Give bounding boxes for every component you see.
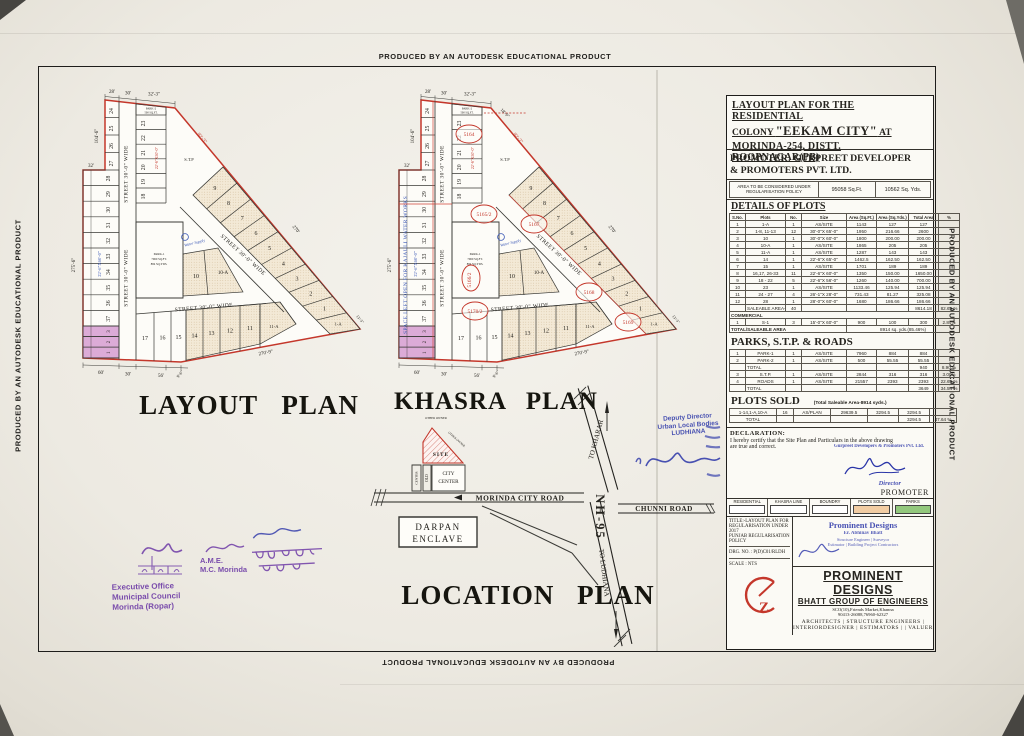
table-cell: 22'-6"X 56'-0" — [802, 277, 847, 284]
table-cell: 8614.18 — [909, 305, 939, 312]
dimension: 32' — [404, 164, 410, 169]
drg-no: DRG. NO. : P(D)C01/RLDH — [729, 547, 790, 559]
details-row: 11-A1AS/SITE1143127127 — [730, 221, 960, 228]
autodesk-banner-top: PRODUCED BY AN AUTODESK EDUCATIONAL PROD… — [365, 52, 625, 61]
table-cell: AS/SITE — [802, 221, 847, 228]
details-of-plots-table: S.No.PlotsNo.SizeArea (Sq.Ft.)Area (Sq.Y… — [729, 213, 960, 333]
to-kharar-label: TO KHARAR — [587, 419, 605, 461]
sold-plot-fill — [399, 347, 435, 358]
table-cell: 1 — [786, 249, 802, 256]
pd-stamp-line1: Prominent Designs — [793, 521, 933, 531]
road-end-tick — [371, 489, 376, 506]
table-cell: SALEABLE AREA-Residential — [746, 305, 786, 312]
plot-number: 8 — [227, 201, 230, 207]
dimension: 270'-9" — [574, 350, 589, 358]
table-cell: 12 — [786, 228, 802, 235]
khasra-plan-title: KHASRA PLAN — [366, 388, 626, 416]
firm-cell: Prominent Designs Er. Abhinav Bhatt Stru… — [793, 517, 933, 635]
table-cell — [730, 305, 746, 312]
table-cell: 1 — [786, 350, 802, 357]
plot-number: 36 — [422, 300, 428, 306]
details-header-row: S.No.PlotsNo.SizeArea (Sq.Ft.)Area (Sq.Y… — [730, 214, 960, 221]
sold-plot-fill — [83, 337, 119, 348]
table-cell: 28 — [746, 298, 786, 305]
table-cell: 143 — [877, 249, 909, 256]
plot-number: 7 — [241, 216, 244, 222]
dimension: 32'-3" — [464, 93, 476, 98]
layout-plan-drawing: 28293031323334353637321STREET 30'-0" WID… — [58, 82, 370, 386]
plot-number: 21 — [457, 150, 463, 156]
plot-number: 10 — [509, 274, 515, 280]
plot-number: 6 — [570, 231, 573, 237]
parks-row: 4ROADS1AS/SITE215572393239322.63 % — [730, 378, 960, 385]
table-cell: AS/SITE — [802, 350, 847, 357]
table-cell — [877, 305, 909, 312]
table-cell: 216.66 — [877, 228, 909, 235]
table-cell: 1701 — [847, 263, 877, 270]
table-cell: 143 — [909, 249, 939, 256]
plan-line — [490, 513, 572, 553]
plot-number: 14 — [192, 333, 198, 339]
table-cell: 2 — [730, 357, 746, 364]
column-header: No. — [786, 214, 802, 221]
legend-row: RESIDENTIAL KHASRA LINE BOUNDRY PLOTS SO… — [727, 499, 933, 517]
parks-row: TOTAL364934.54 % — [730, 385, 960, 392]
plot-number: 8 — [543, 201, 546, 207]
table-cell: 1 — [786, 263, 802, 270]
promoter-line2: & PROMOTERS PVT. LTD. — [730, 165, 930, 177]
table-cell: 125.94 — [877, 284, 909, 291]
plot-number: 4 — [598, 261, 601, 267]
ame-stamp-line1: A.M.E. — [200, 556, 247, 565]
table-cell: 7 — [730, 263, 746, 270]
hindi-stamp — [247, 522, 346, 579]
table-cell: 900 — [847, 319, 877, 326]
park2-label: 500 SQ.FT. — [145, 111, 158, 114]
table-cell — [877, 364, 909, 371]
table-cell: 3649 — [909, 385, 939, 392]
table-cell: TOTAL — [746, 364, 786, 371]
legend-swatch — [853, 505, 889, 514]
plot-number: 34 — [422, 269, 428, 275]
table-cell — [730, 385, 746, 392]
plot-number: 37 — [422, 316, 428, 322]
table-cell: COMMERCIAL — [730, 312, 960, 319]
plot-number: 30 — [106, 207, 112, 213]
plot-number: 18 — [141, 194, 147, 200]
table-cell: AS/SITE — [802, 284, 847, 291]
details-of-plots-heading: DETAILS OF PLOTS — [727, 200, 933, 212]
plot-number: 28 — [106, 176, 112, 182]
table-cell: 16,17, 26-33 — [746, 270, 786, 277]
plot-number: 1-A — [335, 321, 343, 326]
plot-number: 10-A — [218, 271, 229, 276]
plot-number: 3 — [296, 276, 299, 282]
plot-number: 23 — [141, 121, 147, 127]
plot-number: 14 — [508, 333, 514, 339]
dimension: 13'-3" — [355, 314, 365, 325]
table-cell — [786, 364, 802, 371]
scan-corner-tl — [0, 0, 26, 20]
table-cell: 26'-1"X 28'-0" — [802, 291, 847, 298]
table-cell — [786, 385, 802, 392]
table-cell — [730, 364, 746, 371]
details-row: 614122'-6"X 65'-0"1462.5162.50162.50 — [730, 256, 960, 263]
plot-number: 3 — [612, 276, 615, 282]
table-cell: 205 — [877, 242, 909, 249]
sold-plot-fill — [83, 347, 119, 358]
park2-label: 500 SQ.FT. — [461, 111, 474, 114]
plot-number: 16 — [476, 336, 482, 342]
table-cell: 1650.00 — [909, 270, 939, 277]
table-cell: 2600 — [909, 228, 939, 235]
stp-label: S.T.P — [184, 157, 194, 162]
table-cell: 30'-0"X 65'-0" — [802, 228, 847, 235]
plot-number: 20 — [457, 164, 463, 170]
table-cell — [802, 305, 847, 312]
title-info-line: REGULARISATION UNDER 2017 — [729, 524, 790, 534]
table-cell: S-1 — [746, 319, 786, 326]
dimension: 60' — [98, 371, 104, 376]
table-cell: 10 — [746, 235, 786, 242]
khasra-number: 5166/2 — [467, 272, 473, 287]
table-cell: AS/SITE — [802, 378, 847, 385]
parks-row: 3S.T.P.1AS/SITE28443163163.00% — [730, 371, 960, 378]
plot-number: 30 — [422, 207, 428, 213]
table-cell: 3 — [786, 319, 802, 326]
table-cell: 1350 — [847, 270, 877, 277]
table-cell: 1 — [786, 378, 802, 385]
details-row: 1124 - 27426'-1"X 28'-0"731.4381.27325.0… — [730, 291, 960, 298]
plot-number: 7 — [557, 216, 560, 222]
table-cell: 316 — [909, 371, 939, 378]
other-owner-label: OTHER OWNER — [447, 430, 466, 448]
table-cell: 1 — [730, 221, 746, 228]
plot-number: 10 — [193, 274, 199, 280]
table-cell — [868, 416, 899, 423]
plot-dimension-blue: 22'-6"X60'-0" — [413, 251, 418, 277]
dimension: 30' — [441, 92, 447, 97]
table-cell: 81.27 — [877, 291, 909, 298]
paper-crease — [0, 33, 1024, 34]
plot-number: 2 — [625, 291, 628, 297]
details-row: 10231AS/SITE1133.46125.94125.94 — [730, 284, 960, 291]
autodesk-banner-left: PRODUCED BY AN AUTODESK EDUCATIONAL PROD… — [14, 186, 23, 486]
table-cell: 1 — [786, 256, 802, 263]
plot-number: 29 — [422, 191, 428, 197]
declaration-heading: DECLARATION: — [730, 430, 930, 437]
table-cell: 731.43 — [847, 291, 877, 298]
table-cell: AS/SITE — [802, 357, 847, 364]
plot-number: 11-A — [585, 324, 595, 329]
table-cell: 189 — [877, 263, 909, 270]
plot-number: 18 — [457, 194, 463, 200]
executive-officer-signature — [128, 536, 198, 584]
table-cell: 22'-6"X 65'-0" — [802, 256, 847, 263]
plot-number: 19 — [141, 179, 147, 185]
table-cell: 11 — [786, 270, 802, 277]
details-row: 511-A1AS/SITE1287143143 — [730, 249, 960, 256]
plot-number: 29 — [106, 191, 112, 197]
column-header: Plots — [746, 214, 786, 221]
table-cell — [802, 364, 847, 371]
details-row: 310130'-0"X 60'-0"1800200.00200.00 — [730, 235, 960, 242]
title-eekam-city: "EEKAM CITY" — [776, 124, 877, 138]
table-cell — [794, 416, 831, 423]
table-cell: 3294.5 — [899, 416, 930, 423]
table-cell: TOTAL — [746, 385, 786, 392]
dimension: 30' — [125, 373, 131, 378]
table-cell: 2 — [730, 228, 746, 235]
plot-number: 35 — [106, 285, 112, 291]
dimension: 32' — [88, 164, 94, 169]
table-cell: 23 — [746, 284, 786, 291]
column-header: S.No. — [730, 214, 746, 221]
table-cell: 1287 — [847, 249, 877, 256]
sold-plot-fill — [83, 326, 119, 337]
table-cell: 200.00 — [909, 235, 939, 242]
legend-swatch — [812, 505, 848, 514]
table-cell: 205 — [909, 242, 939, 249]
table-cell: AS/SITE — [802, 242, 847, 249]
table-cell: 2.84% — [939, 319, 960, 326]
promoter-block: PROMOTER: GURPREET DEVELOPER & PROMOTERS… — [727, 150, 933, 180]
dimension: 270' — [291, 225, 300, 235]
city-center-box — [432, 465, 465, 491]
plot-number: 4 — [282, 261, 285, 267]
plot-number: 25 — [425, 126, 431, 132]
table-cell — [847, 385, 877, 392]
details-row: 816,17, 26-331122'-6"X 60'-0"1350150.001… — [730, 270, 960, 277]
plot-number: 35 — [422, 285, 428, 291]
khasra-number: 5168 — [584, 290, 595, 296]
table-cell: 884 — [909, 350, 939, 357]
legend-label: RESIDENTIAL — [727, 499, 767, 504]
city-center-label: CITY — [442, 471, 454, 477]
table-cell: 300 — [909, 319, 939, 326]
dimension: 104'-6" — [411, 129, 416, 144]
column-header: Size — [802, 214, 847, 221]
scan-corner-bl — [0, 704, 14, 736]
plot-number: 16 — [160, 336, 166, 342]
plot-number: 22 — [141, 135, 147, 141]
plot-number: 10-A — [534, 271, 545, 276]
table-cell: 7960 — [847, 350, 877, 357]
plot-number: 13 — [209, 331, 215, 337]
area-policy-label: AREA TO BE CONSIDERED UNDER REGULARISATI… — [729, 181, 819, 198]
drawing-title-line1: LAYOUT PLAN FOR THE RESIDENTIAL — [732, 100, 928, 122]
park2-label: PARK-2 — [146, 107, 157, 111]
table-cell: 8 — [730, 270, 746, 277]
blue-ink-marks — [700, 422, 724, 492]
plots-sold-heading: PLOTS SOLD — [731, 395, 800, 407]
plots-sold-heading-row: PLOTS SOLD (Total Saleable Area-8914 syd… — [727, 392, 933, 408]
parks-stp-roads-table: 1PARK-11AS/SITE79608848842PARK-21AS/SITE… — [729, 349, 960, 392]
table-cell — [939, 263, 960, 270]
kajauli-water-works-note: SPACE LEFT OPEN FOR KAJAULI WATER WORKS — [403, 196, 409, 334]
table-cell: S.T.P. — [746, 371, 786, 378]
table-cell: 2393 — [877, 378, 909, 385]
details-table-wrap: S.No.PlotsNo.SizeArea (Sq.Ft.)Area (Sq.Y… — [727, 212, 933, 333]
table-cell: PARK-2 — [746, 357, 786, 364]
table-cell — [831, 416, 868, 423]
autodesk-banner-bottom: PRODUCED BY AN AUTODESK EDUCATIONAL PROD… — [368, 658, 628, 667]
table-cell: 10 — [730, 284, 746, 291]
scan-corner-br — [1002, 694, 1024, 736]
table-cell: 1 — [786, 221, 802, 228]
table-cell: 140.00 — [877, 277, 909, 284]
legend-item: RESIDENTIAL — [727, 499, 768, 516]
parks-row: TOTAL9408.90 % — [730, 364, 960, 371]
plot-number: 5 — [584, 246, 587, 252]
table-cell: 2844 — [847, 371, 877, 378]
plot-number: 33 — [106, 254, 112, 260]
dimension: 28' — [109, 90, 115, 95]
darpan-enclave-label: ENCLAVE — [412, 534, 463, 544]
plot-number: 23 — [457, 121, 463, 127]
plot-dimension-red: 22'-6"X50'-0" — [470, 147, 475, 170]
table-cell: 1 — [730, 350, 746, 357]
paper-crease — [340, 684, 1024, 685]
table-cell: 1680 — [847, 298, 877, 305]
sold-table-wrap: 1-14,1-A,10-A16AS/PLAN29639.53294.53294.… — [727, 408, 933, 423]
road-end-tick — [710, 504, 715, 513]
table-cell: 47.64 % — [930, 416, 957, 423]
table-cell: 3 — [730, 235, 746, 242]
area-policy-row: AREA TO BE CONSIDERED UNDER REGULARISATI… — [727, 180, 933, 200]
legend-item: PARKS — [893, 499, 933, 516]
exec-stamp-line3: Morinda (Ropar) — [112, 601, 181, 613]
plot-number: 11 — [563, 326, 569, 332]
table-cell — [939, 350, 960, 357]
company-subname: BHATT GROUP OF ENGINEERS — [793, 597, 933, 606]
table-cell: 100 — [877, 319, 909, 326]
plot-number: 27 — [425, 161, 431, 167]
road-end-tick — [376, 489, 381, 506]
table-cell — [847, 364, 877, 371]
pd-stamp-box: Prominent Designs Er. Abhinav Bhatt Stru… — [793, 517, 933, 567]
park1-label: PARK-1 — [470, 252, 481, 256]
column-header: % — [939, 214, 960, 221]
table-cell: 8.90 % — [939, 364, 960, 371]
strip-label: CENTER — [415, 471, 419, 485]
legend-swatch — [770, 505, 806, 514]
drawing-title-line2: COLONY "EEKAM CITY" AT — [732, 124, 928, 139]
area-sqyd-value: 10562 Sq. Yds. — [876, 181, 931, 198]
table-cell: 29639.5 — [831, 409, 868, 416]
table-cell — [939, 357, 960, 364]
dimension: 275'-6" — [388, 258, 393, 273]
road-end-tick — [381, 489, 386, 506]
table-cell: 28'-0"X 60'-0" — [802, 298, 847, 305]
table-cell: 127 — [909, 221, 939, 228]
table-cell: 34.54 % — [939, 385, 960, 392]
plot-number: 1-A — [651, 321, 659, 326]
table-cell: 55.55 — [877, 357, 909, 364]
table-cell: ROADS — [746, 378, 786, 385]
road-arrow — [454, 495, 462, 501]
table-cell: 162.50 — [909, 256, 939, 263]
table-cell — [939, 235, 960, 242]
table-cell — [939, 256, 960, 263]
details-row: 7151AS/SITE1701189189 — [730, 263, 960, 270]
plot-number: 1 — [639, 306, 642, 312]
table-cell — [939, 242, 960, 249]
park1-label: 7960 SQ.FT. — [151, 257, 167, 261]
table-cell — [939, 291, 960, 298]
table-cell: 21557 — [847, 378, 877, 385]
layout-plan-title: LAYOUT PLAN — [118, 390, 380, 421]
legend-label: PARKS — [893, 499, 933, 504]
details-row: 21-8, 11-131230'-0"X 65'-0"1950216.66260… — [730, 228, 960, 235]
plan-line — [482, 506, 577, 545]
table-cell: 325.08 — [909, 291, 939, 298]
table-cell: 4 — [730, 242, 746, 249]
table-cell: 16 — [777, 409, 794, 416]
table-cell: 1 — [786, 371, 802, 378]
park1-label: 884 SQ.YDS. — [151, 262, 168, 266]
title-info-line: POLICY — [729, 539, 790, 547]
table-cell — [939, 298, 960, 305]
table-cell: 1 — [786, 298, 802, 305]
logo-z-letter: Z — [759, 600, 769, 616]
plot-number: 6 — [254, 231, 257, 237]
title-colony: COLONY — [732, 128, 776, 138]
table-cell — [930, 409, 957, 416]
plot-number: 33 — [422, 254, 428, 260]
table-cell: 22.63 % — [939, 378, 960, 385]
dimension: 13'-3" — [671, 314, 681, 325]
company-services-line2: INTERIORDESIGNER | ESTIMATORS | | VALUER — [793, 625, 933, 631]
plot-number: 19 — [457, 179, 463, 185]
table-cell: TOTAL/SALEABLE AREA — [730, 326, 847, 333]
table-cell: 1133.46 — [847, 284, 877, 291]
ame-stamp: A.M.E. M.C. Morinda — [200, 556, 247, 574]
plot-number: 5 — [268, 246, 271, 252]
table-cell: 186.66 — [909, 298, 939, 305]
title-block-panel: LAYOUT PLAN FOR THE RESIDENTIAL COLONY "… — [726, 95, 934, 650]
table-cell: 1-A — [746, 221, 786, 228]
table-cell: 10-A — [746, 242, 786, 249]
drawing-title-block: LAYOUT PLAN FOR THE RESIDENTIAL COLONY "… — [727, 96, 933, 150]
table-cell: 1462.5 — [847, 256, 877, 263]
table-cell: 40 — [786, 305, 802, 312]
legend-item: BOUNDRY — [810, 499, 851, 516]
dimension: 270'-9" — [258, 350, 273, 358]
plot-number: 28 — [422, 176, 428, 182]
table-cell: AS/SITE — [802, 371, 847, 378]
plot-dimension-blue: 22'-6"X60'-0" — [97, 251, 102, 277]
table-cell: 1950 — [847, 228, 877, 235]
park1-label: 7960 SQ.FT. — [467, 257, 483, 261]
ame-stamp-line2: M.C. Morinda — [200, 565, 247, 574]
plot-dimension-red: 22'-6"X50'-0" — [154, 147, 159, 170]
plot-number: 32 — [422, 238, 428, 244]
table-cell: 15 — [746, 263, 786, 270]
south-arrow-to-ludhiana — [614, 629, 618, 639]
column-header: Area (Sq.Ft.) — [847, 214, 877, 221]
plots-sold-table: 1-14,1-A,10-A16AS/PLAN29639.53294.53294.… — [729, 408, 957, 423]
dimension: 270' — [607, 225, 616, 235]
table-cell: PARK-1 — [746, 350, 786, 357]
scale-note: SCALE : NTS — [729, 559, 790, 570]
khasra-number: 5164 — [464, 132, 475, 138]
plot-number: 11 — [247, 326, 253, 332]
plot-number: 9 — [213, 186, 216, 192]
park1-label: PARK-1 — [154, 252, 165, 256]
table-cell: 2393 — [909, 378, 939, 385]
legend-label: BOUNDRY — [810, 499, 850, 504]
